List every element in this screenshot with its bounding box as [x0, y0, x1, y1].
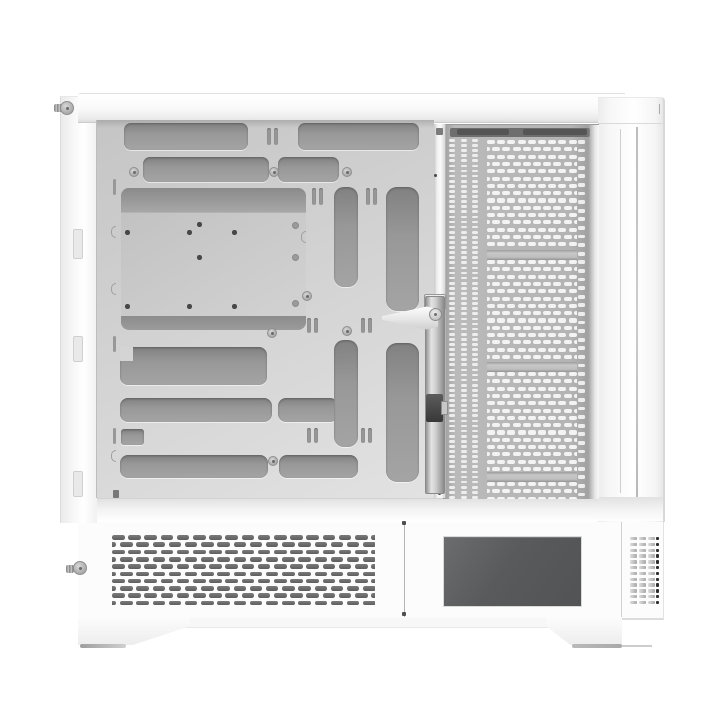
vent-hole [487, 348, 495, 352]
vent-hole [461, 338, 467, 341]
vent-hole [548, 445, 556, 449]
vent-hole [502, 467, 510, 471]
vent-hole [569, 198, 577, 202]
front-vent-slot [639, 589, 646, 592]
vent-hole [502, 297, 510, 301]
vent-hole [569, 333, 577, 337]
vent-hole [564, 147, 572, 151]
vent-hole [513, 235, 521, 239]
vent-hole [461, 414, 467, 417]
vent-hole [564, 220, 572, 224]
vent-hole [487, 355, 490, 359]
vent-hole [487, 452, 490, 456]
front-vent-slot-dark [656, 537, 659, 540]
vent-hole [472, 297, 478, 300]
vent-hole [538, 184, 546, 188]
vent-hole [461, 261, 467, 264]
vent-hole [472, 445, 478, 448]
vent-hole [472, 338, 478, 341]
vent-hole [449, 409, 455, 412]
shroud-vent-slot [331, 601, 344, 606]
vent-hole [558, 460, 566, 464]
vent-hole [533, 452, 541, 456]
front-vent-slot [648, 566, 655, 569]
vent-hole [507, 430, 515, 434]
vent-hole [449, 343, 455, 346]
vent-hole [533, 326, 541, 330]
front-vent-slot-dark [656, 601, 659, 604]
vent-hole [497, 155, 505, 159]
vent-hole [461, 154, 467, 157]
vent-hole [518, 372, 526, 376]
shroud-vent-slot [347, 586, 360, 591]
tray-screw [342, 326, 352, 336]
vent-hole [449, 333, 455, 336]
cable-tie-slot [319, 188, 323, 205]
shroud-vent-slot [217, 542, 230, 547]
vent-hole [538, 497, 546, 499]
vent-hole [548, 482, 556, 486]
vent-hole [543, 326, 551, 330]
vent-hole [487, 155, 495, 159]
vent-hole [538, 430, 546, 434]
vent-hole [538, 445, 546, 449]
shroud-vent-slot [323, 564, 336, 569]
vent-hole [558, 304, 566, 308]
shroud-vent-slot [153, 542, 166, 547]
vent-hole [518, 169, 526, 173]
vent-hole [487, 438, 490, 442]
shroud-vent-slot [177, 550, 190, 555]
vent-hole [492, 162, 500, 166]
vent-hole [502, 206, 510, 210]
shroud-vent-slot [201, 557, 214, 562]
vent-hole [449, 455, 455, 458]
cable-tie-slot [307, 428, 311, 443]
vent-hole [461, 226, 467, 229]
vent-hole [564, 162, 572, 166]
shroud-vent-slot [266, 557, 279, 562]
shroud-vent-slot [234, 601, 247, 606]
vent-hole [513, 452, 521, 456]
shroud-vent-slot [298, 572, 311, 577]
vent-hole [578, 346, 585, 350]
vent-hole [513, 489, 521, 493]
vent-hole [513, 340, 521, 344]
vent-hole [578, 364, 585, 368]
vent-hole [492, 467, 500, 471]
vent-hole [548, 416, 556, 420]
vent-hole [472, 399, 478, 402]
cable-tie-slot [368, 428, 372, 443]
mesh-section [487, 372, 577, 472]
vent-hole [449, 348, 455, 351]
vent-hole [472, 374, 478, 377]
vent-hole [538, 242, 546, 246]
vent-hole [528, 318, 536, 322]
shroud-vent-slot [169, 557, 182, 562]
shroud-vent-slot [371, 535, 375, 540]
latch-hook [111, 450, 116, 462]
vent-hole [533, 467, 541, 471]
vent-hole [461, 409, 467, 412]
right-foot-shadow [572, 644, 622, 648]
front-vent-slot [630, 560, 637, 563]
vent-hole [472, 221, 478, 224]
vent-hole [502, 177, 510, 181]
shroud-vent-slot [347, 542, 360, 547]
shroud-vent-slot [209, 550, 222, 555]
vent-hole [564, 355, 572, 359]
vent-hole [461, 292, 467, 295]
shroud-vent-slot [185, 586, 198, 591]
vent-hole [461, 471, 467, 474]
vent-hole [578, 243, 585, 247]
vent-hole [472, 287, 478, 290]
vent-hole [543, 191, 551, 195]
shroud-vent-slot [169, 601, 182, 606]
vent-hole [523, 162, 531, 166]
tray-cutout [120, 347, 267, 385]
vent-hole [487, 289, 495, 293]
shroud-vent-slot [234, 557, 247, 562]
front-left-foot [78, 618, 190, 645]
vent-hole [548, 275, 556, 279]
vent-hole [502, 235, 510, 239]
vent-hole [564, 438, 572, 442]
shroud-vent-slot [355, 535, 368, 540]
perforated-strip [448, 139, 456, 499]
vent-hole [449, 318, 455, 321]
vent-hole [569, 460, 577, 464]
vent-hole [449, 496, 455, 499]
vent-hole [518, 482, 526, 486]
vent-hole [553, 438, 561, 442]
vent-hole [472, 404, 478, 407]
vent-hole [472, 455, 478, 458]
vent-hole [497, 242, 505, 246]
vent-hole [538, 318, 546, 322]
tray-cutout [279, 455, 358, 478]
vent-hole [492, 326, 500, 330]
vent-hole [518, 213, 526, 217]
vent-hole [472, 353, 478, 356]
vent-hole [472, 241, 478, 244]
front-vent-slot [639, 566, 646, 569]
vent-hole [502, 438, 510, 442]
shroud-vent-slot [144, 550, 157, 555]
vent-hole [518, 348, 526, 352]
vent-hole [564, 340, 572, 344]
vent-hole [449, 328, 455, 331]
tray-cutout [278, 157, 339, 182]
vent-hole [569, 228, 577, 232]
vent-hole [507, 184, 515, 188]
vent-hole [472, 409, 478, 412]
front-vent-slot-dark [656, 543, 659, 546]
vent-hole [548, 401, 556, 405]
vent-hole [472, 190, 478, 193]
vent-hole [564, 394, 572, 398]
vent-hole [487, 242, 495, 246]
vent-hole [449, 241, 455, 244]
vent-hole [492, 147, 500, 151]
shroud-vent-slot [298, 542, 311, 547]
mesh-divider-band [487, 362, 577, 372]
vent-hole [523, 340, 531, 344]
vent-hole [507, 372, 515, 376]
vent-hole [523, 177, 531, 181]
vent-hole [523, 409, 531, 413]
thumbscrew-top [60, 101, 74, 115]
vent-hole [558, 260, 566, 264]
vent-hole [472, 384, 478, 387]
front-vent-slot [630, 537, 637, 540]
vent-hole [528, 482, 536, 486]
vent-hole [513, 409, 521, 413]
shroud-vent-slot [282, 601, 295, 606]
tray-edge-slot [113, 428, 116, 444]
vent-hole [578, 166, 585, 170]
front-vent-slot [639, 554, 646, 557]
shroud-vent-slot [250, 542, 263, 547]
rear-hinge-bump [73, 471, 83, 497]
vent-hole [492, 438, 500, 442]
shroud-vent-slot [128, 593, 141, 598]
shroud-vent-slot [298, 557, 311, 562]
shroud-vent-slot [355, 593, 368, 598]
front-vent-slot [630, 549, 637, 552]
front-vent-slot-dark [656, 560, 659, 563]
vent-hole [518, 318, 526, 322]
shroud-vent-slot [355, 579, 368, 584]
shroud-vent-slot [185, 601, 198, 606]
front-vent-slot [648, 572, 655, 575]
tray-screw [302, 291, 312, 301]
rail-clamp-knob [441, 401, 448, 415]
front-edge-fade [586, 125, 599, 499]
shroud-vent-slot [363, 601, 375, 606]
vent-hole [449, 231, 455, 234]
vent-hole [449, 389, 455, 392]
cable-tie-slot [267, 128, 271, 145]
vent-hole [578, 381, 585, 385]
vent-hole [538, 304, 546, 308]
vent-hole [578, 415, 585, 419]
vent-hole [569, 304, 577, 308]
vent-hole [461, 170, 467, 173]
vent-hole [533, 147, 541, 151]
vent-hole [569, 387, 577, 391]
vent-hole [558, 497, 566, 499]
vent-hole [449, 165, 455, 168]
vent-hole [449, 154, 455, 157]
vent-hole [528, 155, 536, 159]
vent-hole [513, 355, 521, 359]
tray-cutout [143, 157, 269, 182]
vent-hole [449, 420, 455, 423]
frame-corner-tick [659, 104, 660, 114]
shroud-vent-slot [161, 564, 174, 569]
vent-hole [461, 486, 467, 489]
vent-hole [461, 450, 467, 453]
vent-hole [472, 236, 478, 239]
vent-hole [487, 482, 495, 486]
vent-hole [449, 185, 455, 188]
tray-screw [268, 456, 278, 466]
front-vent-slot [639, 572, 646, 575]
vent-hole [461, 282, 467, 285]
vent-hole [578, 312, 585, 316]
vent-hole [553, 177, 561, 181]
vent-hole [472, 323, 478, 326]
tray-cutout [334, 340, 358, 447]
front-mesh-panel [443, 124, 599, 499]
shroud-vent-slot [112, 564, 125, 569]
vent-hole [449, 292, 455, 295]
vent-hole [472, 379, 478, 382]
vent-hole [564, 409, 572, 413]
vent-hole [472, 159, 478, 162]
shroud-vent-slot [339, 564, 352, 569]
cable-tie-slot [361, 318, 365, 333]
shroud-vent-slot [234, 586, 247, 591]
vent-hole [523, 311, 531, 315]
shroud-vent-slot [169, 586, 182, 591]
shroud-vent-slot [306, 564, 319, 569]
shroud-vent-slot [144, 579, 157, 584]
front-vent-slot-dark [656, 583, 659, 586]
vent-hole [461, 149, 467, 152]
vent-hole [507, 401, 515, 405]
tray-cutout [120, 455, 268, 478]
vent-hole [472, 440, 478, 443]
vent-hole [518, 140, 526, 144]
vent-hole [449, 144, 455, 147]
vent-hole [523, 394, 531, 398]
shroud-vent-slot [193, 593, 206, 598]
vent-hole [502, 191, 510, 195]
vent-hole [528, 387, 536, 391]
vent-hole [502, 379, 510, 383]
mesh-divider-band [487, 250, 577, 260]
vent-hole [548, 497, 556, 499]
vent-hole [502, 423, 510, 427]
vent-hole [449, 430, 455, 433]
shroud-vent-slot [201, 542, 214, 547]
vent-hole [472, 302, 478, 305]
vent-hole [538, 169, 546, 173]
shroud-vent-slot [282, 572, 295, 577]
vent-hole [449, 353, 455, 356]
shroud-vent-slot [169, 572, 182, 577]
vent-hole [553, 162, 561, 166]
vent-hole [461, 420, 467, 423]
vent-hole [449, 358, 455, 361]
plate-screw [292, 254, 299, 261]
vent-hole [553, 394, 561, 398]
vent-hole [548, 318, 556, 322]
vent-hole [578, 389, 585, 393]
vent-hole [553, 467, 561, 471]
vent-hole [472, 205, 478, 208]
vent-hole [472, 333, 478, 336]
vent-hole [578, 140, 585, 144]
cable-tie-slot [274, 128, 278, 145]
shroud-vent-slot [120, 557, 133, 562]
shroud-vent-slot [250, 557, 263, 562]
vent-hole [461, 476, 467, 479]
vent-hole [538, 260, 546, 264]
vent-hole [507, 416, 515, 420]
vent-hole [461, 491, 467, 494]
shroud-vent-slot [112, 557, 116, 562]
latch-hook [301, 231, 306, 243]
vent-hole [528, 260, 536, 264]
vent-hole [569, 372, 577, 376]
vent-hole [449, 460, 455, 463]
vent-hole [472, 460, 478, 463]
shroud-vent-slot [258, 550, 271, 555]
vent-hole [569, 416, 577, 420]
vent-hole [558, 333, 566, 337]
vent-hole [538, 401, 546, 405]
vent-hole [472, 465, 478, 468]
vent-hole [449, 236, 455, 239]
vent-hole [461, 343, 467, 346]
tray-screw [267, 328, 277, 338]
vent-hole [472, 491, 478, 494]
vent-hole [564, 282, 572, 286]
vent-hole [461, 312, 467, 315]
cutout-notch [120, 347, 133, 361]
vent-hole [538, 228, 546, 232]
shroud-vent-slot [250, 572, 263, 577]
vent-hole [578, 484, 585, 488]
vent-hole [461, 430, 467, 433]
front-vent-slot [648, 537, 655, 540]
vent-hole [472, 343, 478, 346]
front-top-seam [598, 123, 663, 124]
vent-hole [523, 326, 531, 330]
vent-hole [564, 423, 572, 427]
vent-hole [449, 267, 455, 270]
vent-hole [523, 467, 531, 471]
vent-hole [487, 430, 495, 434]
vent-hole [472, 246, 478, 249]
vent-hole [487, 184, 495, 188]
vent-hole [497, 401, 505, 405]
shroud-vent-slot [193, 535, 206, 540]
vent-hole [528, 304, 536, 308]
shroud-vent-slot [128, 535, 141, 540]
vent-hole [461, 399, 467, 402]
shroud-vent-slot [363, 586, 375, 591]
front-vent-slot-dark [656, 578, 659, 581]
vent-hole [449, 139, 455, 142]
vent-hole [578, 338, 585, 342]
front-vent-slot [630, 543, 637, 546]
vent-hole [543, 355, 551, 359]
vent-hole [449, 307, 455, 310]
shroud-vent-slot [242, 550, 255, 555]
shroud-vent-slot [266, 572, 279, 577]
vent-hole [487, 282, 490, 286]
cable-tie-slot [314, 318, 318, 333]
rear-hinge-bump [73, 336, 83, 362]
vent-hole [487, 401, 495, 405]
vent-hole [449, 272, 455, 275]
